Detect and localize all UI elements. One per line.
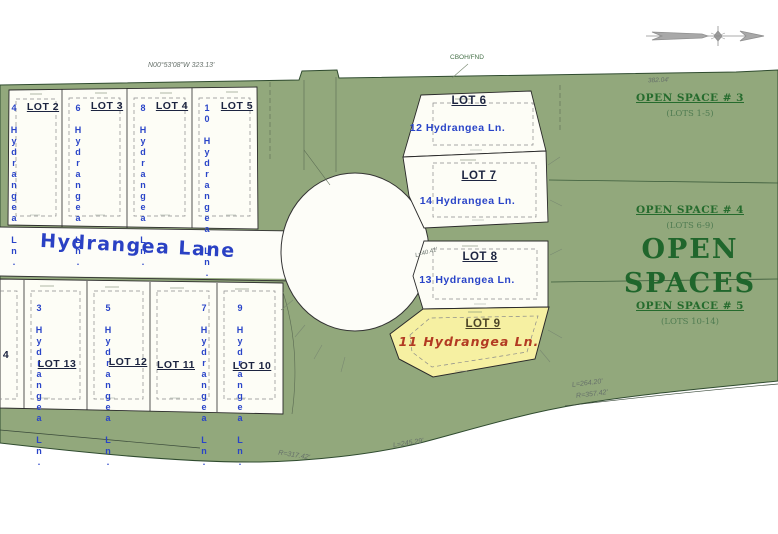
lot-10-address: 9 Hydrangea Ln. xyxy=(234,303,245,471)
open-spaces-heading-line2: SPACES xyxy=(600,268,778,299)
plat-map: N00°53'08"W 323.13' CBOH/FND 382.04' R=3… xyxy=(0,0,778,534)
lot-9-label: LOT 9 xyxy=(443,318,523,330)
lot-7-parcel xyxy=(403,151,548,228)
lot-6-address: 12 Hydrangea Ln. xyxy=(395,122,520,134)
north-arrow-icon xyxy=(646,26,764,46)
lot-13-address: 3 Hydrangea Ln. xyxy=(33,303,44,471)
lot-11-label: LOT 11 xyxy=(149,359,203,371)
open-space-4-label: OPEN SPACE # 4 xyxy=(610,204,770,216)
lot-8-label: LOT 8 xyxy=(440,251,520,263)
lot-5-address: 10 Hydrangea Ln. xyxy=(201,103,212,235)
lot-6-label: LOT 6 xyxy=(429,95,509,107)
corner-marker-note: CBOH/FND xyxy=(450,54,484,61)
open-space-3-label: OPEN SPACE # 3 xyxy=(610,92,770,104)
open-space-3-lots: (LOTS 1-5) xyxy=(610,109,770,119)
lot-9-address-highlighted: 11 Hydrangea Ln. xyxy=(398,334,540,349)
lot-3-label: LOT 3 xyxy=(84,100,130,112)
open-space-5-lots: (LOTS 10-14) xyxy=(610,317,770,327)
lot-4-address: 8 Hydrangea Ln. xyxy=(137,103,148,231)
lot-12-address: 5 Hydrangea Ln. xyxy=(102,303,113,471)
open-spaces-heading-line1: OPEN xyxy=(600,234,778,265)
lot-7-address: 14 Hydrangea Ln. xyxy=(400,195,535,207)
top-boundary-bearing: N00°53'08"W 323.13' xyxy=(148,62,214,69)
lot-2-address: 4 Hydrangea Ln. xyxy=(8,103,19,231)
open-space-4-lots: (LOTS 6-9) xyxy=(610,221,770,231)
lot-2-label: LOT 2 xyxy=(20,101,66,113)
open-space-5-label: OPEN SPACE # 5 xyxy=(610,300,770,312)
lot-11-address: 7 Hydrangea Ln. xyxy=(198,303,209,471)
lot-7-label: LOT 7 xyxy=(439,170,519,182)
east-boundary-distance: 382.04' xyxy=(648,77,669,85)
lot-14-partial-label: 4 xyxy=(0,349,12,361)
lot-4-label: LOT 4 xyxy=(149,100,195,112)
lot-8-address: 13 Hydrangea Ln. xyxy=(402,274,532,286)
lot-3-address: 6 Hydrangea Ln. xyxy=(72,103,83,231)
lot-5-label: LOT 5 xyxy=(214,100,260,112)
